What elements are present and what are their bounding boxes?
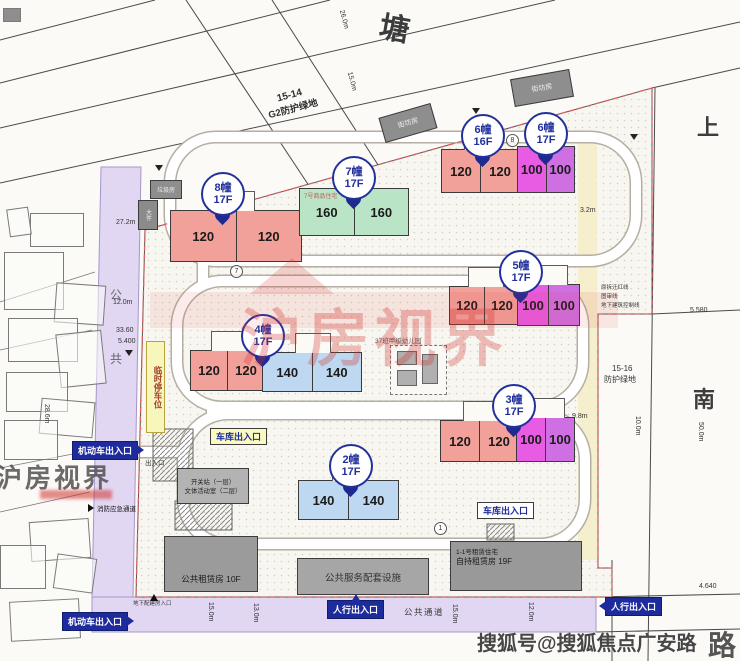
- arrow-right-icon: [137, 445, 149, 455]
- spot-elevation: 5.580: [690, 307, 708, 314]
- note-marker: 8: [506, 134, 519, 147]
- kindergarten-block: [397, 370, 417, 386]
- garage-entrance-label-bottom: 车库出入口: [477, 502, 534, 519]
- pedestrian-entrance-label-right: 人行出入口: [605, 597, 662, 616]
- vehicle-entrance-label-bottom: 机动车出入口: [62, 612, 128, 631]
- site-plan: 塘 上 南 路 15-14 G2防护绿地 15-16 防护绿地 原拆迁红线 图审…: [0, 0, 740, 661]
- switch-line1: 开关站（一层）: [191, 477, 235, 486]
- garage-entrance-label-top: 车库出入口: [210, 428, 267, 445]
- public-rental-housing-10f: 公共租赁房 10F: [164, 536, 258, 592]
- elevation-marker-icon: [155, 165, 163, 175]
- exit-note: 出入口: [145, 457, 165, 467]
- unit-area: 120: [191, 351, 227, 390]
- pedestrian-entrance-text: 人行出入口: [333, 605, 378, 615]
- marker-number: 8幢: [214, 182, 231, 194]
- arrow-left-icon: [594, 601, 606, 611]
- unit-area: 100: [545, 418, 574, 461]
- switch-line2: 文体活动室（二层）: [185, 486, 242, 495]
- kindergarten-label: 37班甲级幼儿园: [375, 335, 421, 345]
- building-marker-6e: 6幢17F: [524, 112, 566, 162]
- existing-building: [0, 545, 46, 589]
- rental19-line1: 1-1号租赁住宅: [456, 546, 498, 556]
- street-name-right-mid: 南: [693, 382, 715, 414]
- dimension: 15.0m: [451, 604, 458, 623]
- dimension: 15.0m: [207, 602, 214, 621]
- boundary-note: 地下建筑控制线: [601, 301, 640, 309]
- marker-floors: 16F: [474, 136, 493, 148]
- kindergarten-block: [397, 351, 417, 365]
- elevation-marker-icon: [125, 350, 133, 360]
- dimension: 9.8m: [572, 413, 588, 420]
- unit-area: 120: [441, 421, 479, 461]
- fire-lane-label: 消防应急通道: [97, 503, 136, 513]
- vehicle-entrance-text: 机动车出入口: [68, 617, 122, 627]
- pedestrian-entrance-text: 人行出入口: [611, 602, 656, 612]
- dimension: 28.6m: [43, 404, 50, 423]
- arrow-up-icon: [351, 589, 361, 602]
- marker-floors: 17F: [537, 134, 556, 146]
- fire-lane-text: 消防应急通道: [97, 506, 136, 513]
- bulky-waste-room: 大件: [138, 200, 158, 230]
- kindergarten-block: [422, 354, 438, 384]
- stair-core: [295, 333, 331, 355]
- marker-number: 2幢: [342, 454, 359, 466]
- dimension: 12.0m: [527, 602, 534, 621]
- building-marker-3: 3幢17F: [492, 384, 534, 434]
- unit-area: 100: [548, 285, 579, 325]
- dimension: 27.2m: [116, 219, 135, 226]
- existing-building: [3, 8, 21, 22]
- marker-floors: 17F: [345, 178, 364, 190]
- building-marker-5: 5幢17F: [499, 250, 541, 300]
- marker-floors: 17F: [512, 272, 531, 284]
- boundary-note: 原拆迁红线: [601, 283, 629, 291]
- fire-lane-arrow-icon: [88, 504, 98, 512]
- existing-building: [4, 420, 58, 460]
- marker-number: 7幢: [345, 166, 362, 178]
- marker-number: 5幢: [512, 260, 529, 272]
- note-marker: 1: [434, 522, 447, 535]
- vehicle-entrance-label-mid: 机动车出入口: [72, 441, 138, 460]
- self-held-rental-19f: 1-1号租赁住宅 自持租赁房 19F: [450, 541, 582, 591]
- marker-floors: 17F: [342, 466, 361, 478]
- building-marker-7: 7幢17F: [332, 156, 374, 206]
- building-marker-4: 4幢17F: [241, 314, 283, 364]
- temp-parking-label: 临时停车位: [146, 341, 165, 433]
- vehicle-entrance-text: 机动车出入口: [78, 446, 132, 456]
- marker-number: 6幢: [474, 124, 491, 136]
- unit-area: 120: [236, 211, 302, 261]
- spot-elevation: 5.400: [118, 338, 136, 345]
- marker-floors: 17F: [254, 336, 273, 348]
- existing-building: [53, 553, 97, 593]
- dimension: 13.0m: [252, 603, 259, 622]
- street-name-right-bottom: 路: [708, 624, 736, 661]
- marker-number: 4幢: [254, 324, 271, 336]
- building-marker-2: 2幢17F: [329, 444, 371, 494]
- marker-floors: 17F: [505, 406, 524, 418]
- dimension: 33.60: [116, 327, 134, 334]
- street-name-right-top: 上: [697, 110, 719, 142]
- road-char-2: 共: [110, 350, 122, 367]
- public-passage-label: 公共通道: [404, 606, 444, 618]
- existing-building: [6, 207, 32, 238]
- unit-area: 140: [312, 353, 362, 391]
- dimension: 3.2m: [580, 207, 596, 214]
- marker-number: 6幢: [537, 122, 554, 134]
- basement-entrance-arrow-icon: [150, 590, 158, 601]
- unit-area: 120: [450, 287, 484, 324]
- dimension: 50.0m: [697, 422, 704, 441]
- marker-number: 3幢: [505, 394, 522, 406]
- kindergarten-site: [390, 345, 447, 395]
- green-belt-g16-code: 15-16: [612, 364, 632, 373]
- switch-station: 开关站（一层） 文体活动室（二层）: [177, 468, 249, 504]
- rental19-line2: 自持租赁房 19F: [456, 556, 512, 567]
- green-belt-g16-name: 防护绿地: [604, 374, 636, 385]
- arrow-right-icon: [127, 616, 139, 626]
- trash-room: 垃圾房: [150, 180, 182, 199]
- pedestrian-entrance-label-center: 人行出入口: [327, 600, 384, 619]
- elevation-marker-icon: [630, 134, 638, 144]
- dimension: 12.0m: [113, 299, 132, 306]
- marker-floors: 17F: [214, 194, 233, 206]
- note-marker: 7: [230, 265, 243, 278]
- dimension: 10.0m: [634, 416, 641, 435]
- boundary-note: 图审线: [601, 292, 618, 300]
- public-service-facility: 公共服务配套设施: [297, 558, 429, 595]
- building-marker-6w: 6幢16F: [461, 114, 503, 164]
- building-marker-8: 8幢17F: [201, 172, 243, 222]
- existing-building: [30, 213, 84, 247]
- spot-elevation: 4.640: [699, 583, 717, 590]
